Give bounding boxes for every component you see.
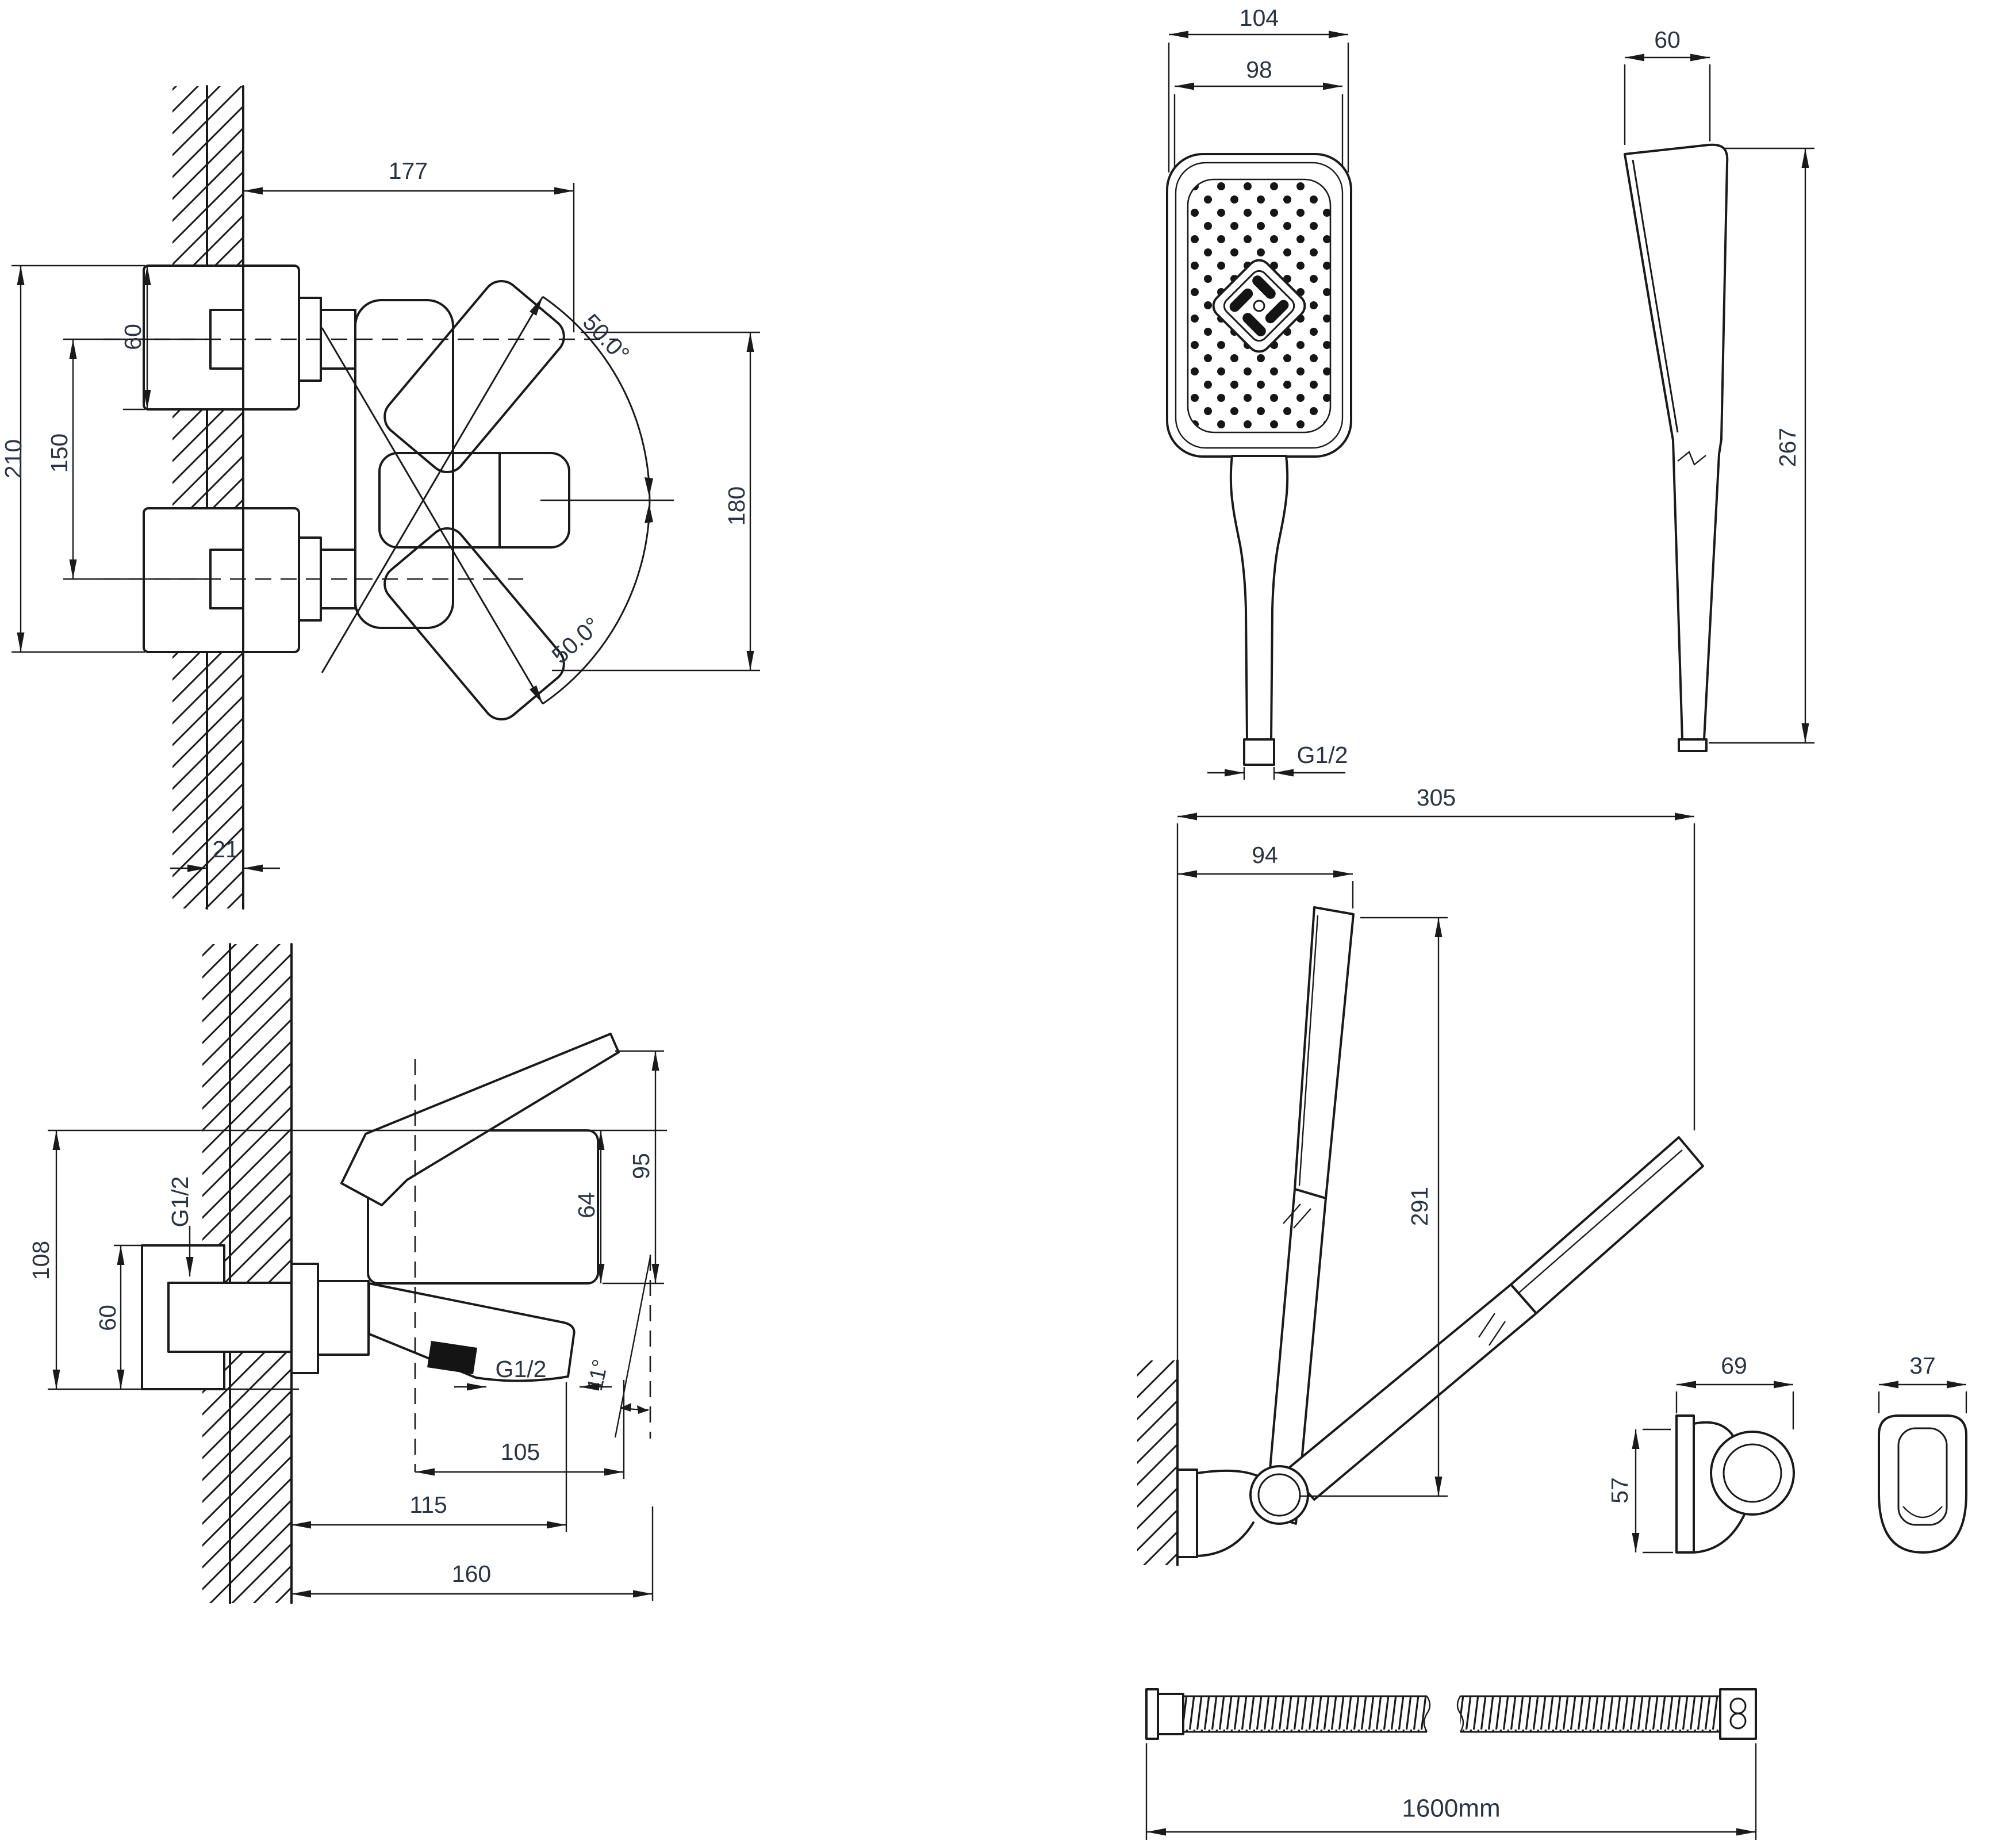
technical-drawing-canvas: 177 210 150 60 180 21 50.0° 50.0° xyxy=(0,0,1991,1848)
angle-50-upper-label: 50.0° xyxy=(578,309,635,367)
dim-305-label: 305 xyxy=(1417,784,1456,811)
holder-assembly-view: 305 94 291 xyxy=(1137,784,1703,1565)
hose-coil-left xyxy=(1183,1696,1427,1732)
dim-267-label: 267 xyxy=(1774,428,1801,467)
hand-shower-front-view: 104 98 G1/2 xyxy=(1167,5,1351,780)
faucet-side-view: 11° 108 60 G1/2 95 64 G1/2 105 115 160 xyxy=(28,944,667,1603)
dim-150-label: 150 xyxy=(46,434,72,473)
dim-160-label: 160 xyxy=(452,1561,491,1587)
dim-1600mm-label: 1600mm xyxy=(1402,1795,1500,1823)
hose-view: 1600mm xyxy=(1146,1689,1756,1840)
dim-60-label: 60 xyxy=(120,324,146,350)
dim-291-label: 291 xyxy=(1406,1187,1433,1226)
angle-11-label: 11° xyxy=(583,1357,613,1393)
dim-98-label: 98 xyxy=(1246,56,1272,83)
shower-vertical-head xyxy=(1295,907,1353,1198)
dim-108-label: 108 xyxy=(28,1241,54,1280)
dim-60-shower-label: 60 xyxy=(1654,26,1681,53)
dim-104-label: 104 xyxy=(1240,5,1279,31)
dim-57-label: 57 xyxy=(1606,1477,1633,1504)
dim-69-label: 69 xyxy=(1721,1352,1747,1379)
holder-front-view: 37 xyxy=(1879,1352,1966,1552)
shower-angled-handle xyxy=(1287,1285,1536,1500)
thread-g12-outlet-label: G1/2 xyxy=(496,1356,547,1382)
drawing-page: { "colors": { "ink": "#1a1a1a", "label":… xyxy=(0,0,1991,1848)
hose-coil-right xyxy=(1460,1696,1720,1732)
hand-shower-side-view: 60 267 xyxy=(1625,26,1814,751)
dim-64-label: 64 xyxy=(573,1192,600,1218)
dim-115-label: 115 xyxy=(409,1492,447,1518)
thread-g12-shower-label: G1/2 xyxy=(1297,742,1348,768)
thread-g12-inlet-label: G1/2 xyxy=(167,1176,193,1228)
shower-handle xyxy=(1231,456,1287,739)
holder-side-view: 69 57 xyxy=(1606,1352,1794,1552)
faucet-top-view: 177 210 150 60 180 21 50.0° 50.0° xyxy=(0,86,760,908)
shower-angled-head xyxy=(1511,1137,1703,1313)
dim-21-label: 21 xyxy=(212,836,239,862)
angle-50-lower-label: 50.0° xyxy=(547,612,605,669)
dim-210-label: 210 xyxy=(0,439,26,478)
dim-37-label: 37 xyxy=(1909,1352,1936,1379)
dim-60-side-label: 60 xyxy=(94,1305,121,1331)
dim-180-label: 180 xyxy=(723,486,750,526)
dim-177-label: 177 xyxy=(389,158,428,184)
wall-hatch xyxy=(1137,1360,1177,1565)
shower-profile xyxy=(1625,145,1727,739)
dim-94-label: 94 xyxy=(1252,842,1278,868)
dim-105-label: 105 xyxy=(501,1439,540,1465)
dim-95-label: 95 xyxy=(628,1153,654,1179)
